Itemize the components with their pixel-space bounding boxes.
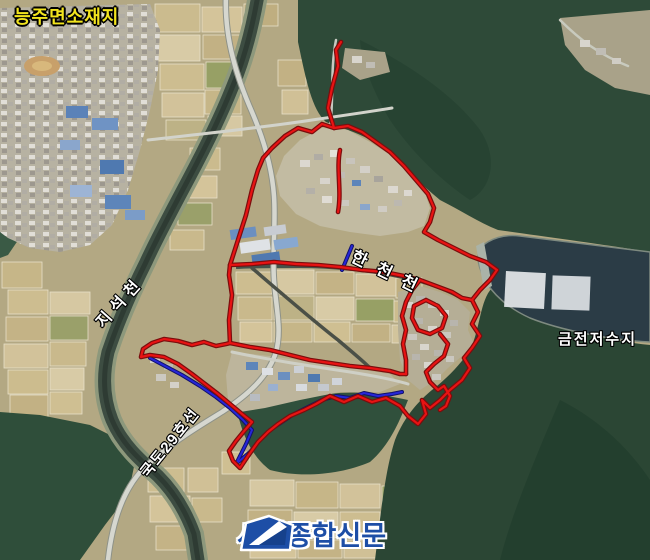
label-town-neungju: 능주면소재지 xyxy=(14,8,119,26)
town-area xyxy=(0,4,160,252)
satellite-map: 능주면소재지 지석천 한천천 금전저수지 국도29호선 시사종합신문 xyxy=(0,0,650,560)
newspaper-logo-icon xyxy=(237,514,295,554)
floating-panel xyxy=(504,271,546,309)
floating-panel xyxy=(551,275,590,310)
label-reservoir-geumjeon: 금전저수지 xyxy=(558,332,637,347)
publisher-watermark: 시사종합신문 xyxy=(237,514,386,553)
map-artwork xyxy=(0,0,650,560)
